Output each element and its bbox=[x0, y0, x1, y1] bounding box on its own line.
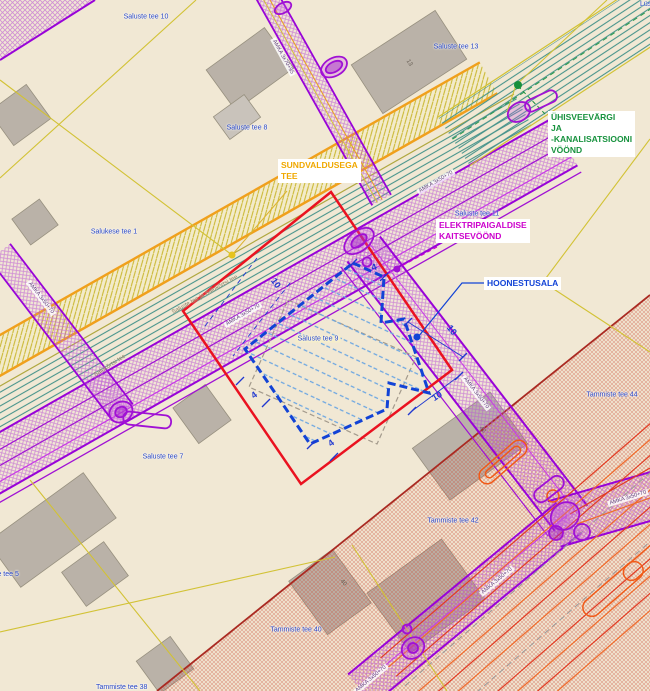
electric-ref-dot bbox=[394, 266, 401, 273]
water-ref-dot bbox=[514, 81, 522, 89]
detail-plan-map: Saluste tee 10 Saluste tee 8 Saluste tee… bbox=[0, 0, 650, 691]
building-area-ref-dot bbox=[414, 334, 421, 341]
road-ref-dot bbox=[229, 252, 236, 259]
map-canvas bbox=[0, 0, 650, 691]
